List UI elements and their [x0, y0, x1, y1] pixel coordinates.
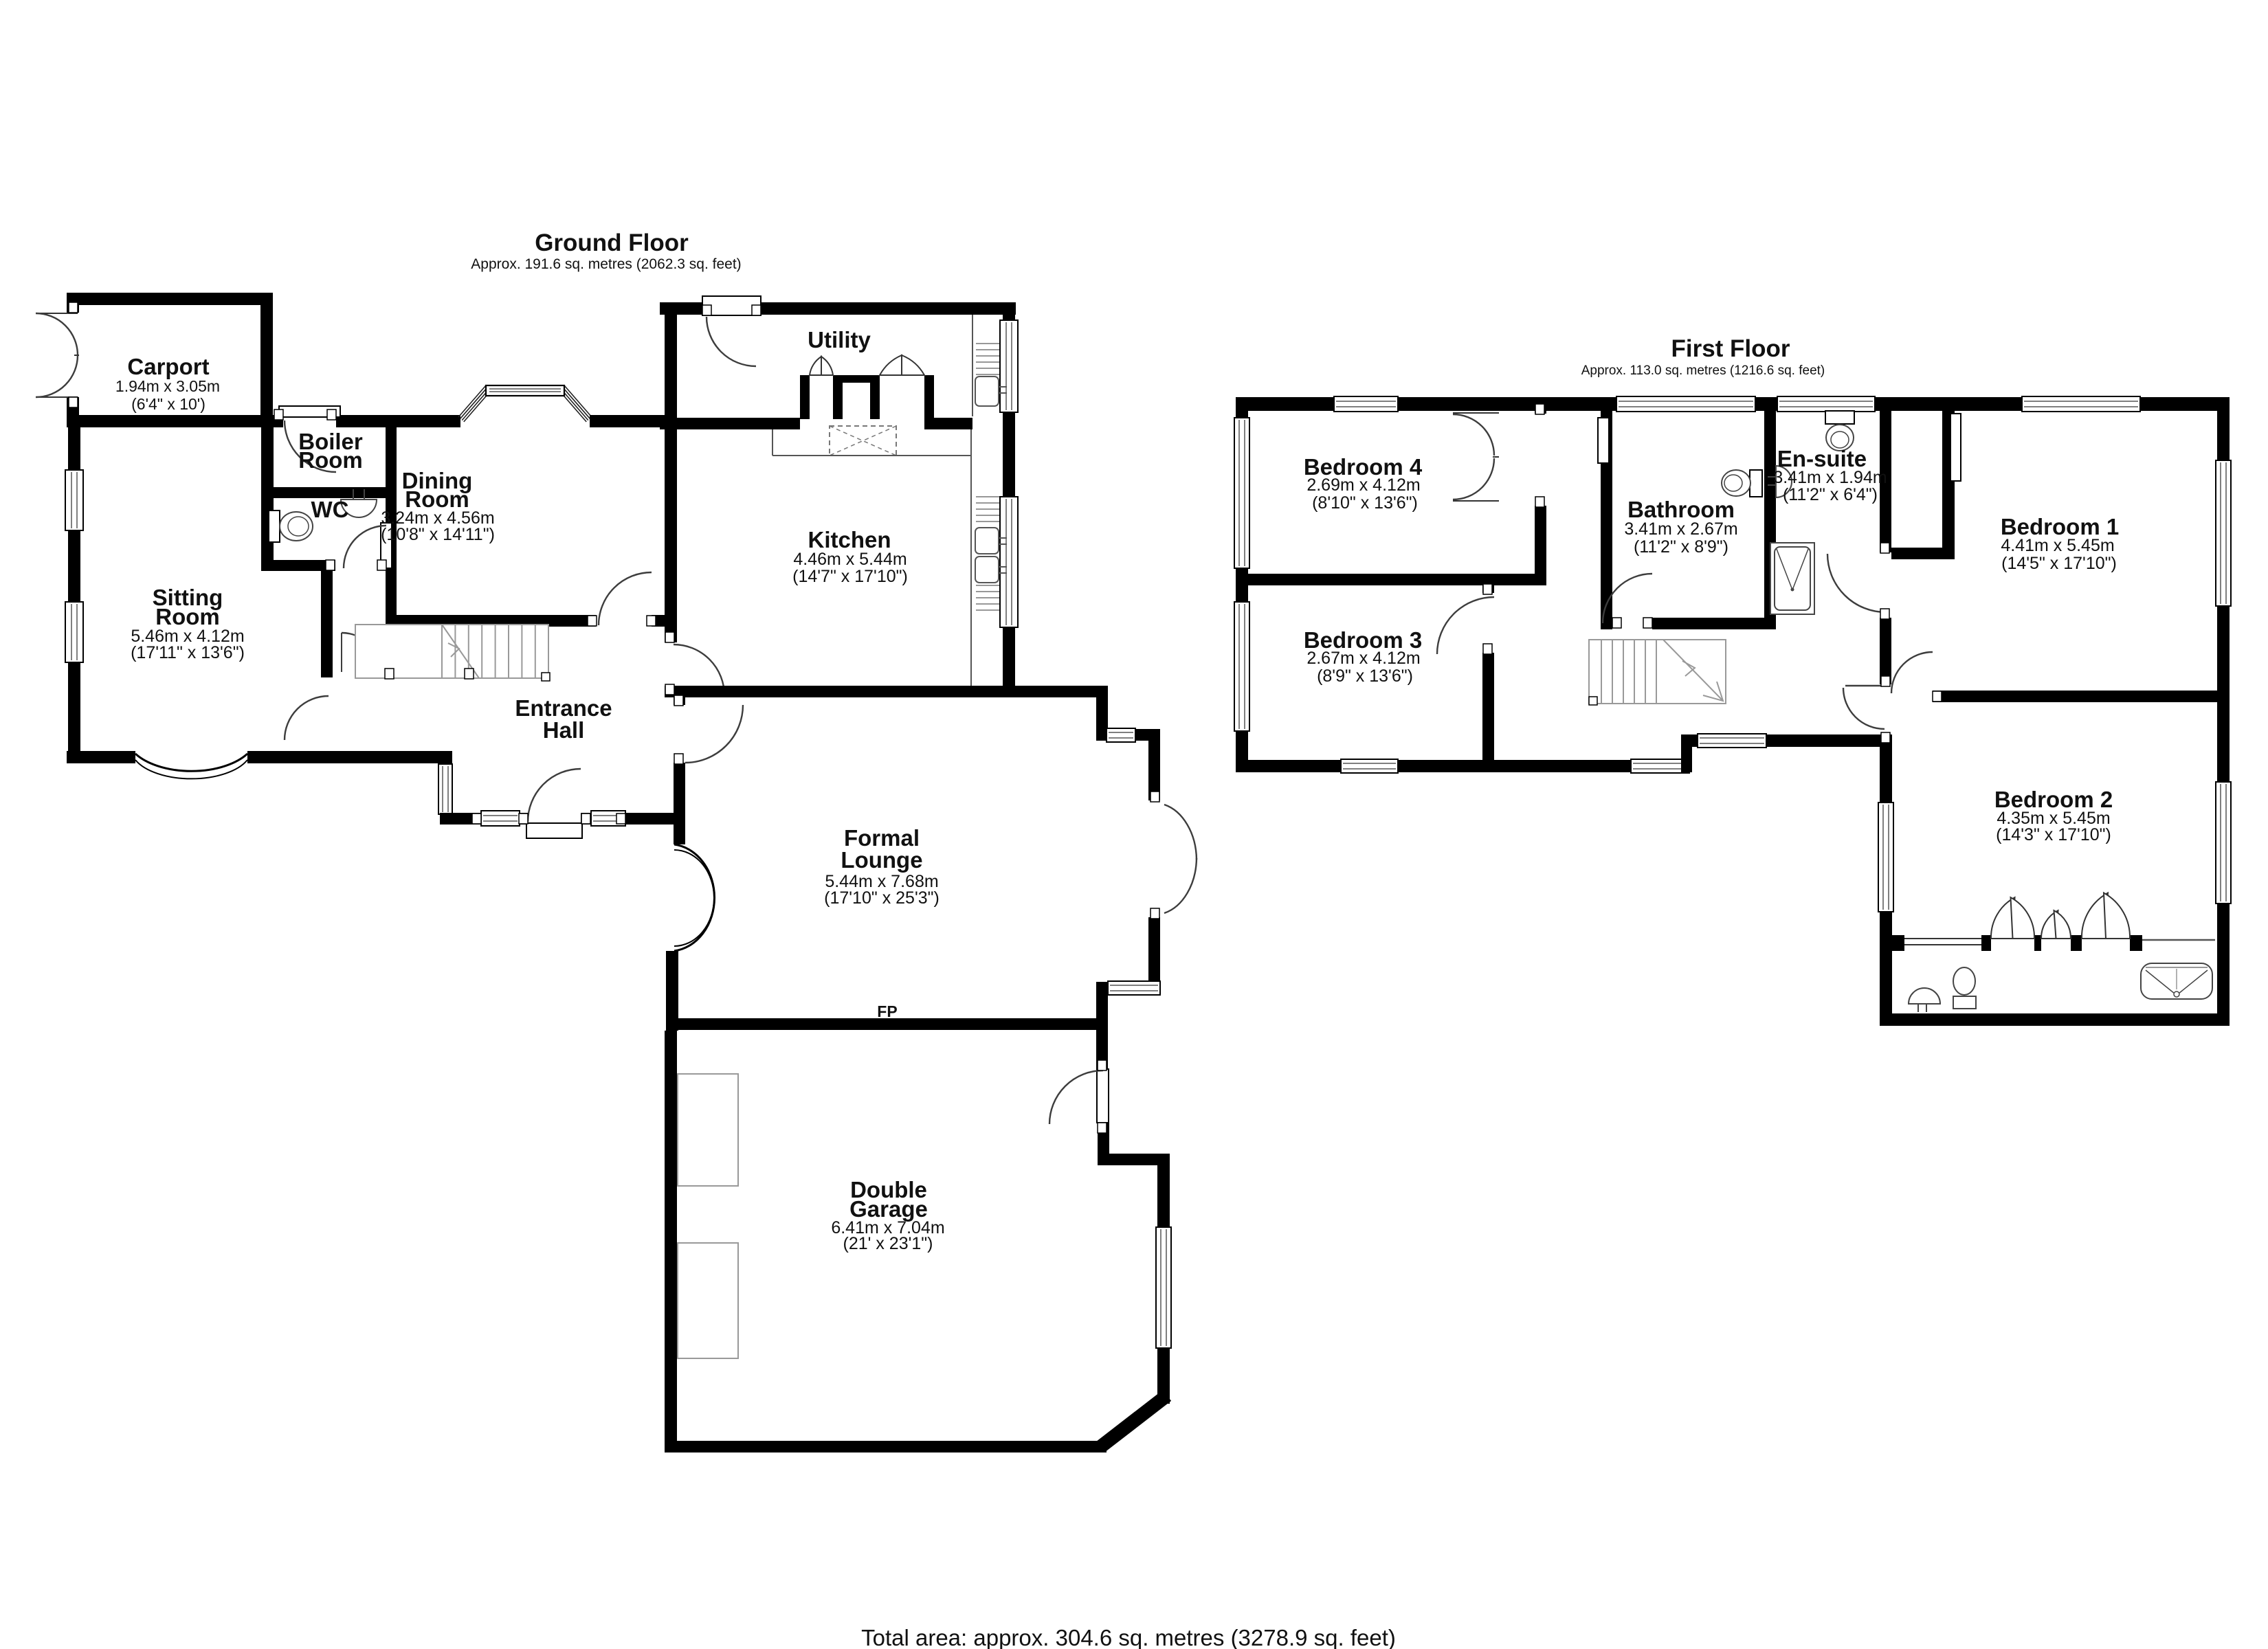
svg-text:(14'3" x 17'10"): (14'3" x 17'10") — [1996, 825, 2111, 844]
svg-text:Ground Floor: Ground Floor — [535, 229, 689, 256]
svg-text:4.46m x 5.44m: 4.46m x 5.44m — [793, 550, 907, 569]
svg-text:2.69m x 4.12m: 2.69m x 4.12m — [1307, 475, 1420, 495]
svg-text:Hall: Hall — [543, 717, 585, 743]
svg-text:Utility: Utility — [808, 327, 871, 352]
svg-text:(14'7" x 17'10"): (14'7" x 17'10") — [792, 567, 908, 586]
svg-text:4.41m x 5.45m: 4.41m x 5.45m — [2001, 536, 2114, 555]
svg-text:2.67m x 4.12m: 2.67m x 4.12m — [1307, 649, 1420, 668]
svg-text:WC: WC — [311, 497, 349, 522]
svg-text:(11'2" x 6'4"): (11'2" x 6'4") — [1783, 485, 1878, 504]
svg-text:Total area: approx. 304.6 sq.: Total area: approx. 304.6 sq. metres (32… — [861, 1625, 1396, 1649]
svg-text:3.41m x 2.67m: 3.41m x 2.67m — [1624, 519, 1737, 539]
svg-text:FP: FP — [877, 1002, 897, 1020]
svg-text:(10'8" x 14'11"): (10'8" x 14'11") — [381, 525, 495, 544]
svg-text:1.94m x 3.05m: 1.94m x 3.05m — [115, 377, 220, 395]
svg-text:First Floor: First Floor — [1671, 335, 1790, 362]
svg-text:(6'4" x 10'): (6'4" x 10') — [131, 395, 205, 413]
svg-text:(14'5" x 17'10"): (14'5" x 17'10") — [2001, 554, 2117, 573]
svg-text:3.41m x 1.94m: 3.41m x 1.94m — [1773, 468, 1887, 487]
svg-text:(17'10" x 25'3"): (17'10" x 25'3") — [824, 888, 940, 908]
svg-text:(8'9" x 13'6"): (8'9" x 13'6") — [1317, 666, 1413, 686]
svg-text:Approx. 191.6 sq. metres (2062: Approx. 191.6 sq. metres (2062.3 sq. fee… — [471, 256, 741, 272]
svg-text:(8'10" x 13'6"): (8'10" x 13'6") — [1312, 493, 1418, 513]
svg-text:Carport: Carport — [127, 354, 209, 379]
svg-text:Room: Room — [298, 447, 363, 473]
svg-text:Approx. 113.0 sq. metres (1216: Approx. 113.0 sq. metres (1216.6 sq. fee… — [1581, 363, 1825, 378]
svg-text:Bathroom: Bathroom — [1627, 497, 1735, 522]
svg-text:(21' x 23'1"): (21' x 23'1") — [843, 1234, 933, 1253]
svg-text:Kitchen: Kitchen — [808, 527, 891, 552]
svg-text:Room: Room — [155, 604, 220, 629]
svg-text:(11'2" x 8'9"): (11'2" x 8'9") — [1634, 537, 1728, 557]
svg-text:(17'11" x 13'6"): (17'11" x 13'6") — [131, 643, 245, 662]
svg-text:Lounge: Lounge — [841, 847, 922, 873]
